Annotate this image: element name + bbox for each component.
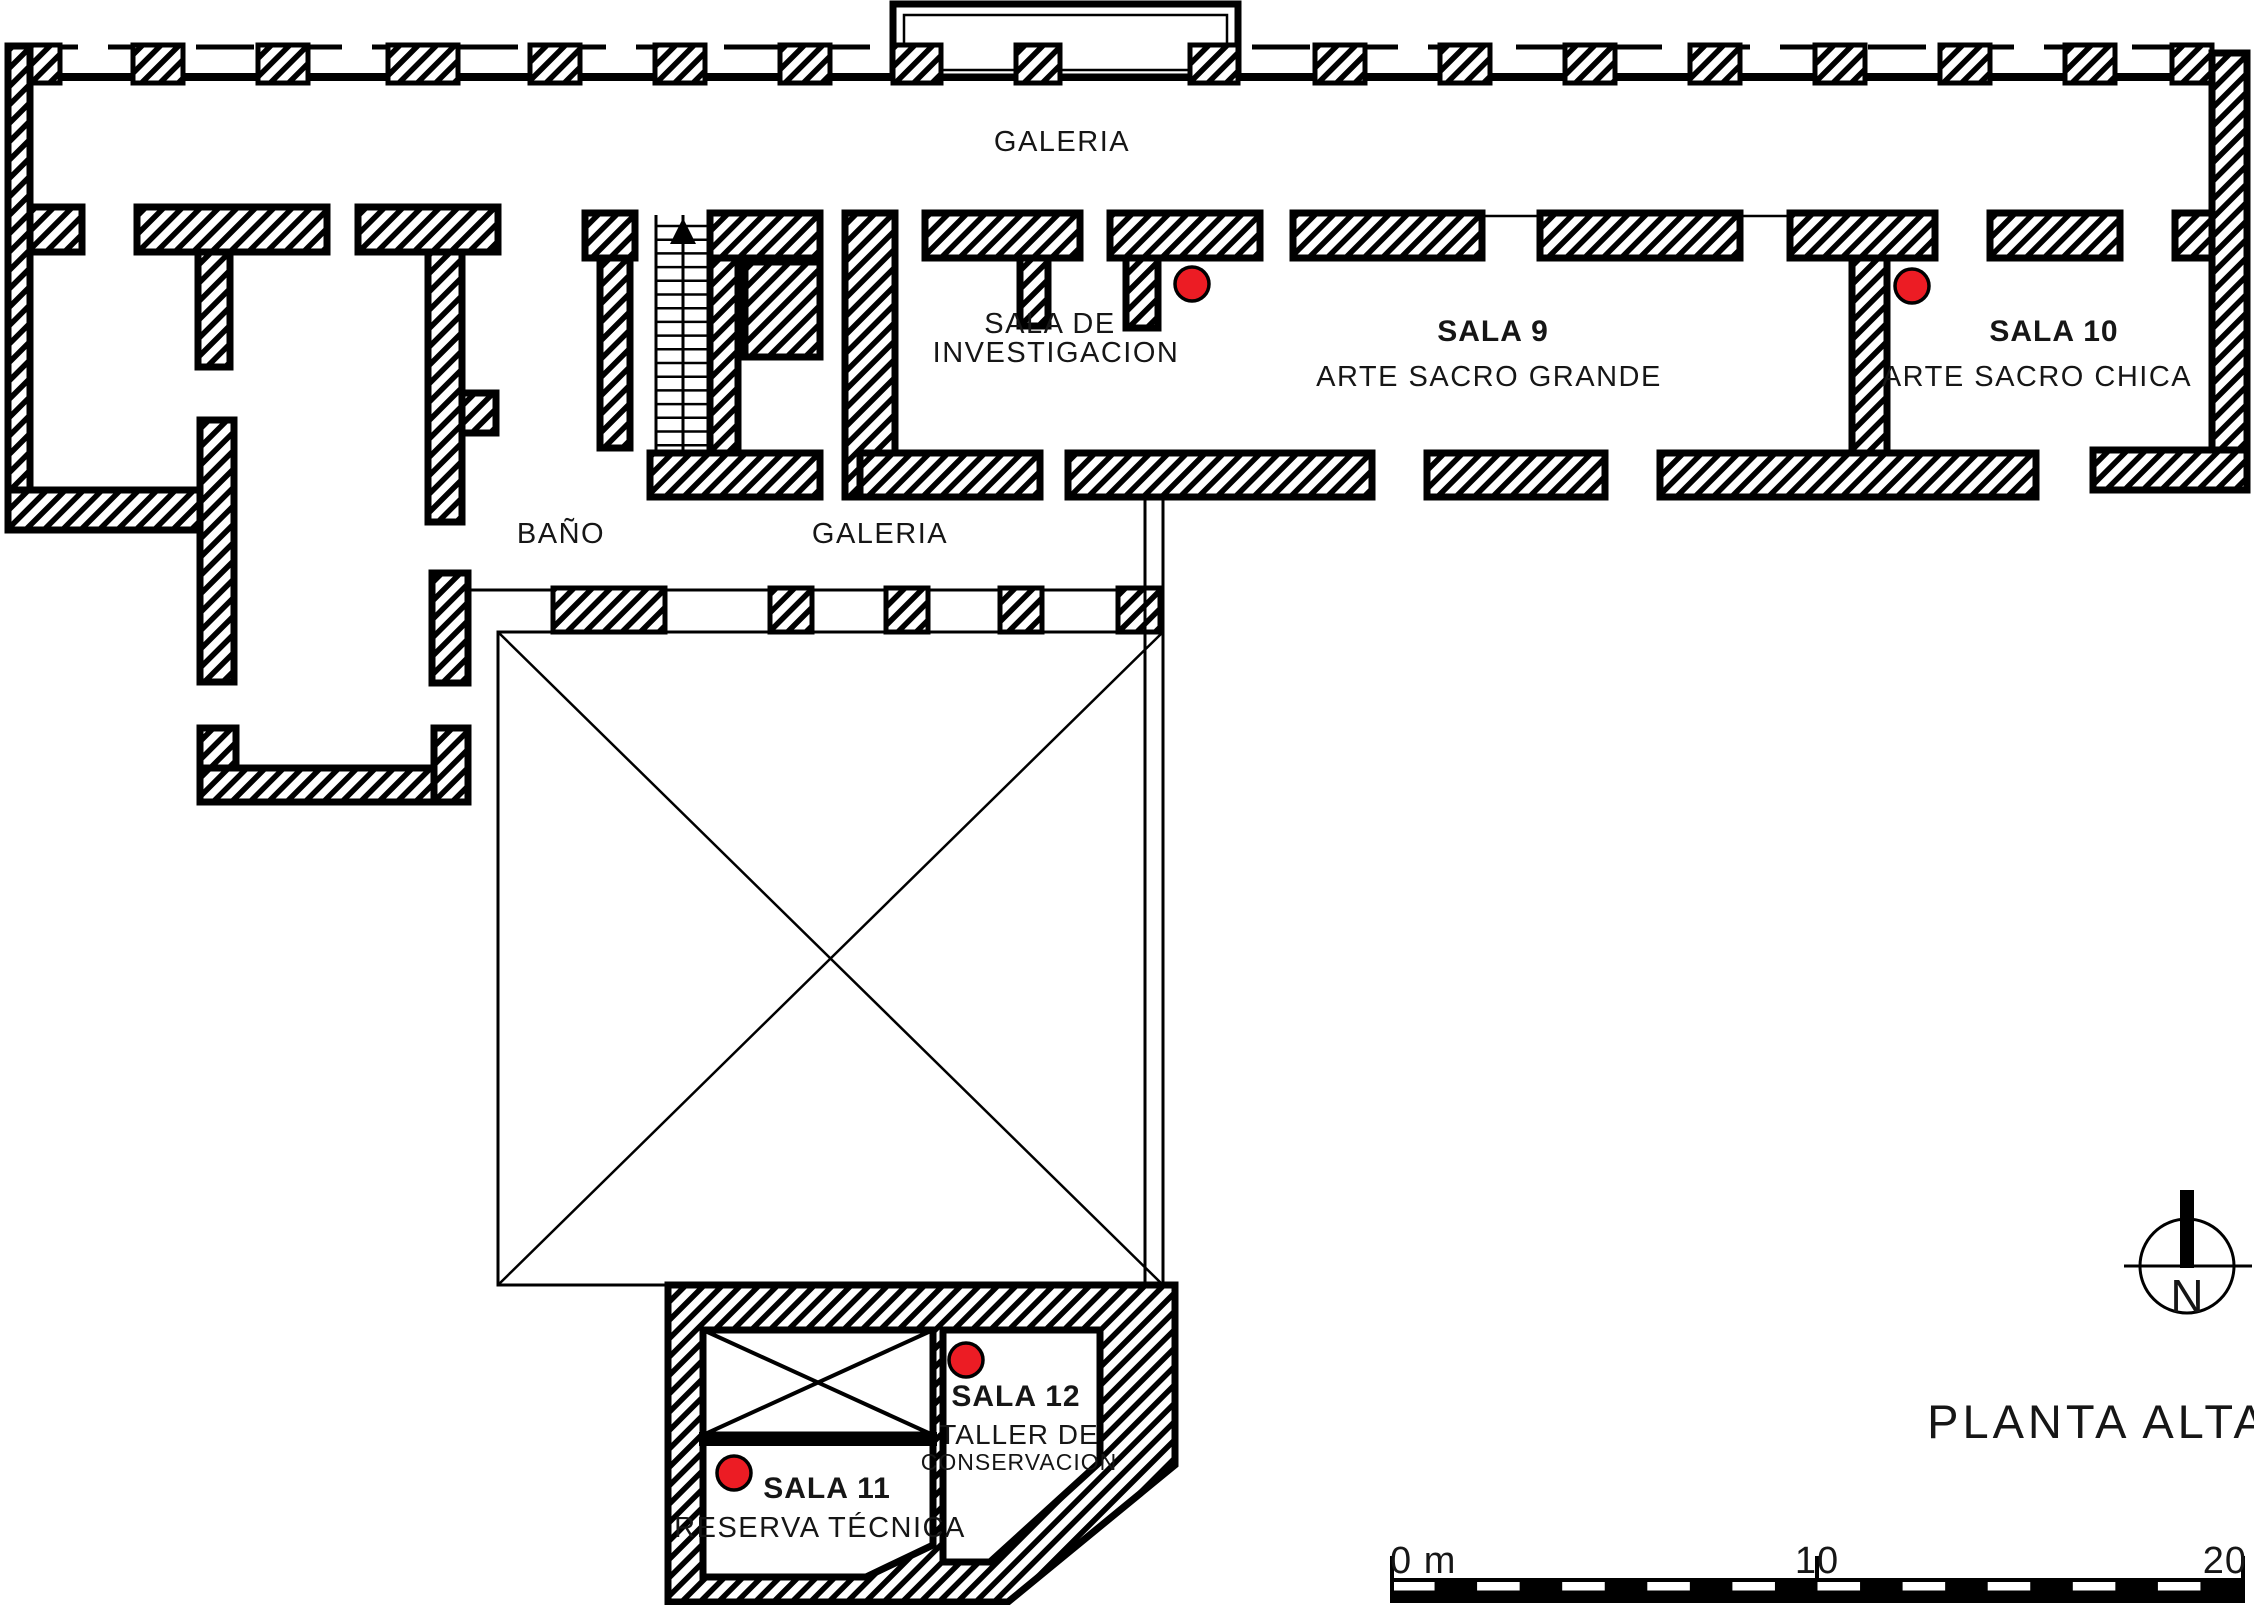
scale-bar: 0 m 10 20 — [1390, 1540, 2247, 1601]
label-investigacion-2: INVESTIGACION — [933, 337, 1180, 369]
floor-plan: N 0 m 10 20 GALERIA SALA DE INVESTIGACIO… — [0, 0, 2254, 1605]
scale-mid-label: 10 — [1795, 1540, 1839, 1582]
marker-sala-11 — [717, 1456, 751, 1490]
marker-sala-10 — [1895, 269, 1929, 303]
label-investigacion-1: SALA DE — [984, 308, 1115, 340]
top-facade — [8, 4, 2247, 83]
interior-walls-lower-band — [860, 450, 2247, 497]
label-galeria-top: GALERIA — [994, 126, 1130, 158]
floor-plan-page: N 0 m 10 20 GALERIA SALA DE INVESTIGACIO… — [0, 0, 2254, 1605]
label-sala9-name: ARTE SACRO GRANDE — [1316, 361, 1662, 393]
label-sala12-name-2: CONSERVACION — [921, 1449, 1117, 1475]
label-bano: BAÑO — [517, 516, 605, 550]
label-sala10-name: ARTE SACRO CHICA — [1882, 361, 2192, 393]
label-galeria-lower: GALERIA — [812, 518, 948, 550]
marker-sala-12 — [949, 1343, 983, 1377]
label-sala10-number: SALA 10 — [1989, 315, 2118, 348]
label-sala11-number: SALA 11 — [763, 1472, 891, 1505]
label-sala12-number: SALA 12 — [951, 1380, 1080, 1413]
elevator-shaft — [703, 1330, 933, 1435]
lower-block — [668, 1285, 1175, 1602]
bay-window — [893, 4, 1238, 77]
label-sala12-name-1: TALLER DE — [939, 1419, 1098, 1450]
lower-colonnade — [468, 588, 1163, 632]
label-sala9-number: SALA 9 — [1437, 315, 1549, 348]
marker-sala-investigacion — [1175, 267, 1209, 301]
north-label: N — [2170, 1270, 2203, 1322]
north-arrow-icon: N — [2124, 1190, 2252, 1322]
plan-title: PLANTA ALTA — [1927, 1395, 2254, 1448]
scale-zero-label: 0 m — [1390, 1540, 1456, 1582]
label-sala11-name: RESERVA TÉCNICA — [674, 1511, 966, 1544]
staircase — [656, 215, 710, 452]
scale-end-label: 20 — [2203, 1540, 2247, 1582]
stair-direction-arrow — [670, 218, 696, 244]
left-block-walls — [8, 420, 468, 802]
courtyard — [498, 632, 1163, 1285]
